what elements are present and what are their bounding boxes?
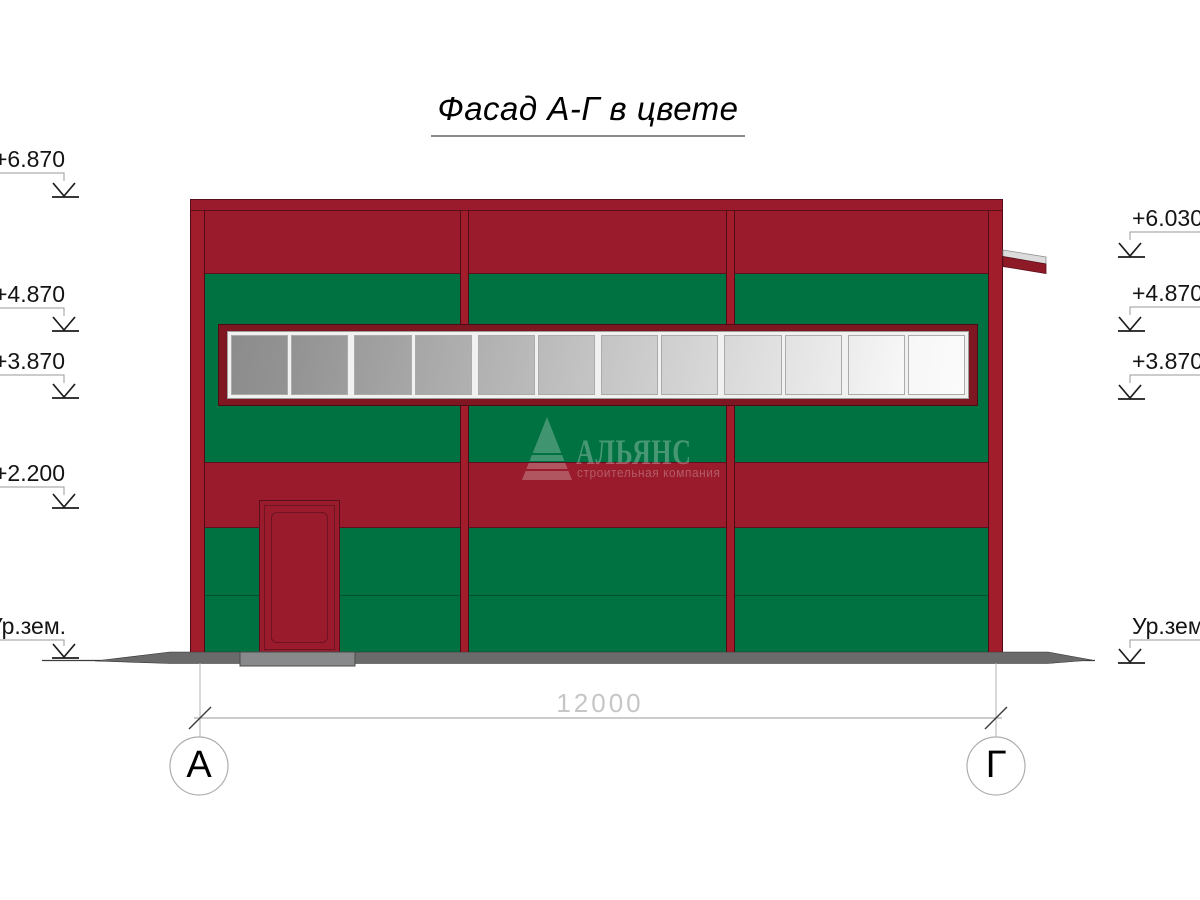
axis-letter-g: Г [966, 744, 1026, 787]
ground-level-label-right: Ур.зем. [1132, 613, 1200, 640]
dimension-label: 12000 [400, 688, 800, 719]
facade-drawing-page: { "title": "Фасад А-Г в цвете", "waterma… [0, 0, 1200, 900]
elevation-label-4870-left: +4.870 [0, 281, 65, 308]
ground-level-label-left: Ур.зем. [0, 613, 65, 640]
window-pane [291, 335, 348, 395]
elevation-label-4870-right: +4.870 [1132, 280, 1200, 307]
window-pane [908, 335, 965, 395]
marker-leader-lines-left [0, 173, 64, 646]
window-pane [478, 335, 535, 395]
elevation-label-3870-right: +3.870 [1132, 348, 1200, 375]
pilaster-left-edge [190, 211, 205, 655]
marker-arrows-left [52, 183, 79, 658]
elevation-label-6030: +6.030 [1132, 205, 1200, 232]
window-pane [848, 335, 905, 395]
elevation-label-2200: +2.200 [0, 460, 65, 487]
building-facade [190, 199, 1003, 655]
wall-band-red-upper [190, 211, 1003, 274]
door-frame [264, 505, 335, 650]
watermark-tagline: строительная компания [577, 466, 720, 480]
elevation-label-6870: +6.870 [0, 146, 65, 173]
elevation-label-3870-left: +3.870 [0, 348, 65, 375]
window-pane [415, 335, 472, 395]
window-pane [724, 335, 781, 395]
parapet-cap [190, 199, 1003, 211]
drawing-title-wrap: Фасад А-Г в цвете [0, 90, 1176, 137]
pilaster-middle-2 [726, 211, 735, 655]
window-strip [227, 331, 969, 399]
pilaster-middle-1 [460, 211, 469, 655]
window-pane [601, 335, 658, 395]
window-ribbon [218, 324, 978, 406]
window-pane [785, 335, 842, 395]
pilaster-right-edge [988, 211, 1003, 655]
window-pane [661, 335, 718, 395]
window-pane [538, 335, 595, 395]
drawing-title: Фасад А-Г в цвете [431, 90, 744, 137]
dimension-and-axes [170, 663, 1025, 795]
window-pane [231, 335, 288, 395]
door-leaf-panel [271, 512, 328, 643]
entrance-door [259, 500, 340, 655]
axis-letter-a: А [169, 744, 229, 787]
canopy [1003, 250, 1046, 274]
window-pane [354, 335, 411, 395]
